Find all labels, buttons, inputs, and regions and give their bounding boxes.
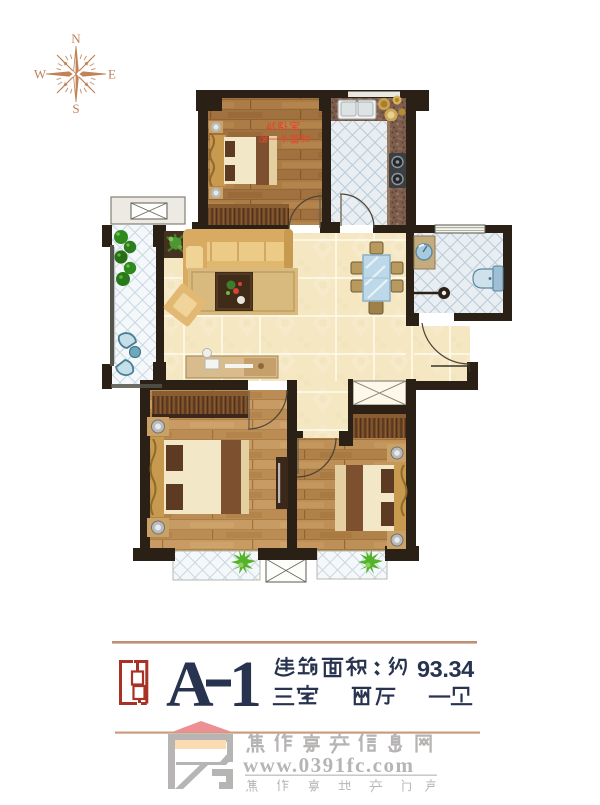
svg-text:93.34: 93.34 [417, 656, 474, 682]
svg-text:S: S [72, 101, 79, 116]
svg-text:1: 1 [229, 648, 262, 721]
svg-text:E: E [108, 67, 116, 82]
svg-text:www.0391fc.com: www.0391fc.com [243, 753, 414, 777]
svg-text:W: W [34, 67, 47, 82]
svg-text:N: N [71, 31, 81, 46]
